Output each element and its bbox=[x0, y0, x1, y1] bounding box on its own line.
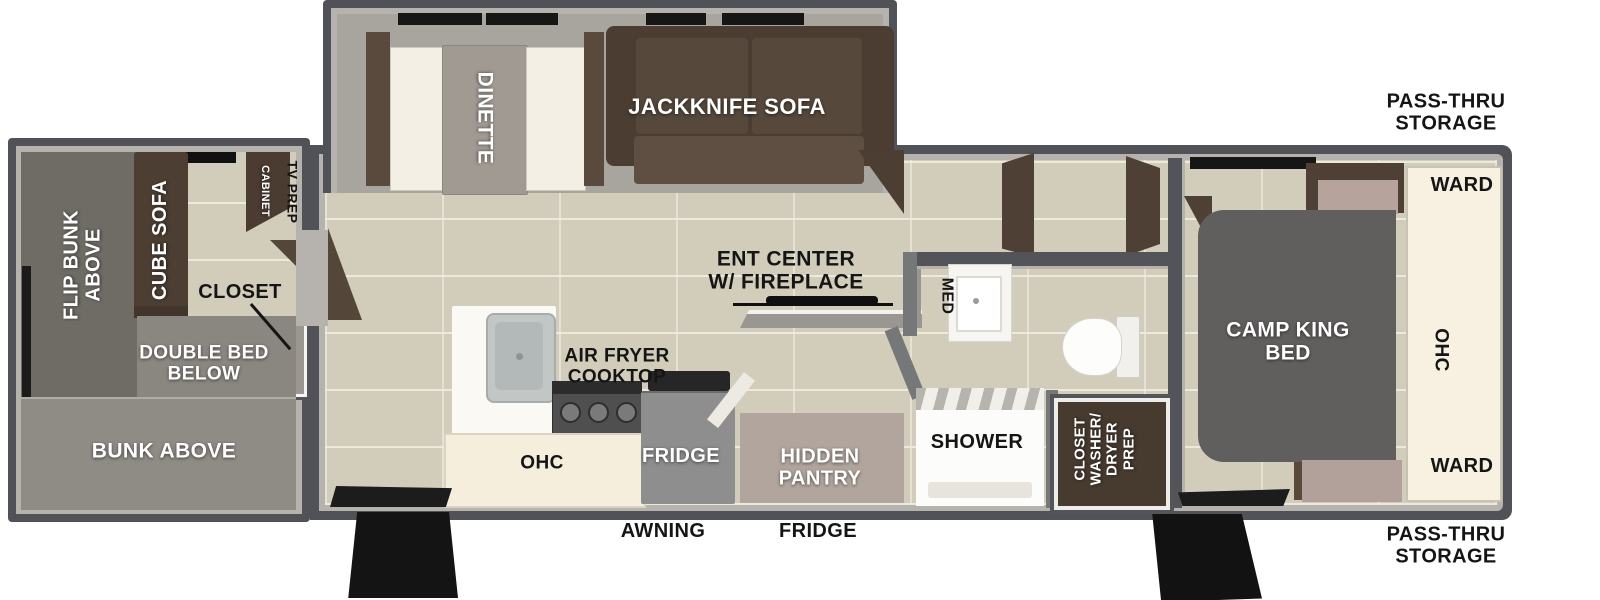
label-pass-thru-storage-top: PASS-THRUSTORAGE bbox=[1387, 91, 1506, 134]
label-air-fryer-cooktop: AIR FRYERCOOKTOP bbox=[564, 346, 669, 387]
label-awning: AWNING bbox=[621, 521, 706, 543]
label-hidden-pantry: HIDDENPANTRY bbox=[779, 446, 861, 489]
label-jackknife-sofa: JACKKNIFE SOFA bbox=[628, 95, 826, 119]
label-cabinet: CABINET bbox=[258, 165, 270, 217]
label-fridge-appliance: FRIDGE bbox=[642, 446, 720, 468]
label-ent-center: ENT CENTERW/ FIREPLACE bbox=[708, 248, 863, 293]
label-pass-thru-storage-bottom: PASS-THRUSTORAGE bbox=[1387, 524, 1506, 567]
label-dinette: DINETTE bbox=[473, 72, 496, 165]
label-cube-sofa: CUBE SOFA bbox=[150, 180, 172, 300]
label-closet-washer-dryer: CLOSETWASHER/DRYERPREP bbox=[1073, 413, 1138, 486]
label-flip-bunk-above: FLIP BUNKABOVE bbox=[61, 210, 104, 320]
label-closet: CLOSET bbox=[198, 282, 282, 304]
label-tv-prep: TV PREP bbox=[284, 161, 299, 224]
floorplan-canvas: DINETTEJACKKNIFE SOFAPASS-THRUSTORAGEWAR… bbox=[0, 0, 1600, 600]
label-camp-king-bed: CAMP KINGBED bbox=[1226, 319, 1349, 364]
label-bunk-above: BUNK ABOVE bbox=[92, 441, 236, 464]
label-ohc-kitchen: OHC bbox=[520, 454, 563, 475]
label-med: MED bbox=[938, 278, 955, 315]
label-shower: SHOWER bbox=[931, 432, 1023, 454]
label-ohc-bedroom: OHC bbox=[1430, 328, 1451, 371]
label-ward-top: WARD bbox=[1431, 175, 1494, 197]
label-fridge-exterior: FRIDGE bbox=[779, 521, 857, 543]
labels-layer: DINETTEJACKKNIFE SOFAPASS-THRUSTORAGEWAR… bbox=[0, 0, 1600, 600]
label-double-bed-below: DOUBLE BEDBELOW bbox=[139, 343, 269, 384]
label-ward-bottom: WARD bbox=[1431, 456, 1494, 478]
